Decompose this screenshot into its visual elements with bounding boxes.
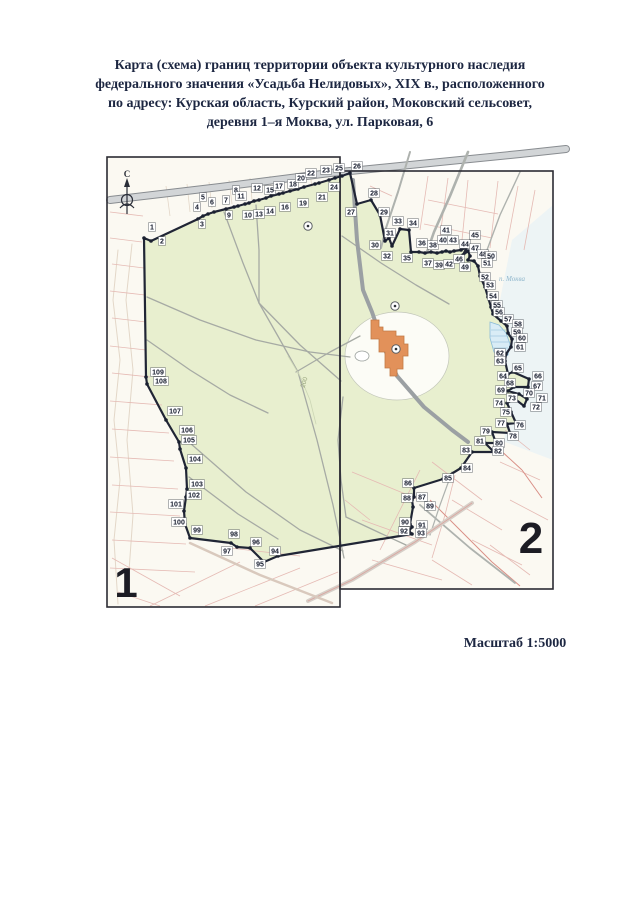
boundary-point-number: 53 [486, 283, 494, 290]
boundary-point-number: 16 [281, 205, 289, 212]
boundary-point-14: 14 [265, 207, 276, 216]
boundary-point-number: 7 [224, 198, 228, 205]
boundary-point-85: 85 [443, 474, 454, 483]
boundary-vertex-dot [257, 198, 261, 202]
boundary-point-number: 86 [404, 481, 412, 488]
boundary-point-number: 38 [429, 243, 437, 250]
boundary-point-number: 24 [330, 185, 338, 192]
boundary-point-77: 77 [496, 419, 507, 428]
boundary-vertex-dot [269, 194, 273, 198]
boundary-point-101: 101 [169, 500, 184, 509]
boundary-map: 1234567891011121314151617181920212223242… [0, 0, 640, 904]
boundary-point-number: 68 [506, 381, 514, 388]
boundary-point-number: 101 [170, 502, 182, 509]
boundary-vertex-dot [177, 440, 181, 444]
boundary-vertex-dot [212, 210, 216, 214]
boundary-point-29: 29 [379, 208, 390, 217]
boundary-point-63: 63 [495, 357, 506, 366]
boundary-vertex-dot [142, 236, 146, 240]
boundary-point-number: 74 [495, 401, 503, 408]
boundary-point-number: 107 [169, 409, 181, 416]
boundary-point-66: 66 [533, 372, 544, 381]
boundary-point-number: 87 [418, 495, 426, 502]
boundary-point-43: 43 [448, 236, 459, 245]
boundary-vertex-dot [476, 264, 480, 268]
boundary-point-30: 30 [370, 241, 381, 250]
boundary-point-98: 98 [229, 530, 240, 539]
boundary-vertex-dot [410, 525, 414, 529]
boundary-vertex-dot [468, 254, 472, 258]
boundary-vertex-dot [178, 447, 182, 451]
boundary-vertex-dot [383, 239, 387, 243]
boundary-point-number: 4 [195, 205, 199, 212]
boundary-point-51: 51 [482, 259, 493, 268]
boundary-point-13: 13 [254, 210, 265, 219]
boundary-vertex-dot [164, 418, 168, 422]
boundary-point-97: 97 [222, 547, 233, 556]
boundary-point-46: 46 [454, 255, 465, 264]
boundary-point-number: 18 [289, 182, 297, 189]
scale-caption: Масштаб 1:5000 [365, 636, 640, 652]
boundary-point-33: 33 [393, 217, 404, 226]
boundary-point-49: 49 [460, 263, 471, 272]
boundary-point-57: 57 [503, 315, 514, 324]
boundary-point-108: 108 [154, 377, 169, 386]
boundary-point-100: 100 [172, 518, 187, 527]
boundary-point-number: 98 [230, 532, 238, 539]
boundary-point-83: 83 [461, 446, 472, 455]
boundary-vertex-dot [526, 385, 530, 389]
boundary-point-number: 1 [150, 225, 154, 232]
boundary-vertex-dot [333, 176, 337, 180]
boundary-point-79: 79 [481, 427, 492, 436]
boundary-point-number: 39 [435, 263, 443, 270]
boundary-point-number: 6 [210, 200, 214, 207]
boundary-point-84: 84 [462, 464, 473, 473]
boundary-point-106: 106 [180, 426, 195, 435]
boundary-point-86: 86 [403, 479, 414, 488]
boundary-point-number: 27 [347, 210, 355, 217]
boundary-point-number: 65 [514, 366, 522, 373]
boundary-vertex-dot [440, 250, 444, 254]
boundary-vertex-dot [506, 389, 510, 393]
boundary-vertex-dot [517, 392, 521, 396]
boundary-point-number: 10 [244, 213, 252, 220]
boundary-point-81: 81 [475, 437, 486, 446]
boundary-vertex-dot [302, 185, 306, 189]
boundary-vertex-dot [398, 227, 402, 231]
boundary-point-number: 71 [538, 396, 546, 403]
boundary-point-27: 27 [346, 208, 357, 217]
boundary-point-70: 70 [524, 389, 535, 398]
boundary-point-number: 78 [509, 434, 517, 441]
boundary-point-number: 34 [409, 221, 417, 228]
boundary-point-number: 93 [417, 531, 425, 538]
boundary-point-54: 54 [488, 292, 499, 301]
boundary-vertex-dot [288, 189, 292, 193]
boundary-point-number: 45 [471, 233, 479, 240]
boundary-point-71: 71 [537, 394, 548, 403]
boundary-vertex-dot [313, 182, 317, 186]
boundary-point-41: 41 [441, 226, 452, 235]
boundary-point-number: 54 [489, 294, 497, 301]
boundary-point-number: 12 [253, 186, 261, 193]
boundary-point-number: 97 [223, 549, 231, 556]
document-page: Карта (схема) границ территории объекта … [0, 0, 640, 904]
boundary-point-105: 105 [182, 436, 197, 445]
boundary-vertex-dot [236, 204, 240, 208]
boundary-point-58: 58 [513, 320, 524, 329]
boundary-point-89: 89 [425, 502, 436, 511]
boundary-point-number: 49 [461, 265, 469, 272]
boundary-vertex-dot [229, 541, 233, 545]
boundary-vertex-dot [435, 251, 439, 255]
boundary-vertex-dot [510, 337, 514, 341]
boundary-point-65: 65 [513, 364, 524, 373]
boundary-point-104: 104 [188, 455, 203, 464]
boundary-point-96: 96 [251, 538, 262, 547]
boundary-vertex-dot [243, 202, 247, 206]
boundary-point-number: 22 [307, 171, 315, 178]
boundary-point-95: 95 [255, 560, 266, 569]
boundary-point-103: 103 [190, 480, 205, 489]
boundary-point-109: 109 [151, 368, 166, 377]
boundary-point-87: 87 [417, 493, 428, 502]
boundary-point-16: 16 [280, 203, 291, 212]
boundary-point-number: 109 [152, 370, 164, 377]
boundary-point-number: 2 [160, 239, 164, 246]
boundary-point-number: 3 [200, 222, 204, 229]
boundary-vertex-dot [224, 207, 228, 211]
boundary-point-number: 79 [482, 429, 490, 436]
boundary-point-number: 9 [227, 213, 231, 220]
boundary-point-number: 31 [386, 231, 394, 238]
boundary-vertex-dot [499, 319, 503, 323]
boundary-point-number: 57 [504, 317, 512, 324]
boundary-point-number: 106 [181, 428, 193, 435]
boundary-point-number: 108 [155, 379, 167, 386]
boundary-point-24: 24 [329, 183, 340, 192]
boundary-point-22: 22 [306, 169, 317, 178]
small-pond [355, 351, 369, 361]
boundary-point-number: 30 [371, 243, 379, 250]
monument-symbol-dot [307, 225, 310, 228]
boundary-point-76: 76 [515, 421, 526, 430]
boundary-vertex-dot [144, 375, 148, 379]
boundary-vertex-dot [185, 487, 189, 491]
boundary-point-number: 44 [461, 242, 469, 249]
boundary-vertex-dot [466, 249, 470, 253]
boundary-point-19: 19 [298, 199, 309, 208]
boundary-vertex-dot [340, 174, 344, 178]
boundary-point-number: 99 [193, 528, 201, 535]
boundary-vertex-dot [472, 259, 476, 263]
boundary-point-74: 74 [494, 399, 505, 408]
boundary-point-82: 82 [493, 447, 504, 456]
boundary-point-61: 61 [515, 343, 526, 352]
boundary-point-38: 38 [428, 241, 439, 250]
boundary-point-99: 99 [192, 526, 203, 535]
boundary-point-number: 23 [322, 168, 330, 175]
boundary-vertex-dot [248, 546, 252, 550]
boundary-point-number: 75 [502, 410, 510, 417]
boundary-point-number: 11 [237, 194, 245, 201]
boundary-point-number: 94 [271, 549, 279, 556]
monument-symbol-dot [394, 305, 397, 308]
boundary-point-62: 62 [495, 349, 506, 358]
boundary-point-number: 19 [299, 201, 307, 208]
boundary-point-88: 88 [402, 494, 413, 503]
boundary-point-80: 80 [494, 439, 505, 448]
boundary-point-number: 81 [476, 439, 484, 446]
boundary-point-26: 26 [352, 162, 363, 171]
boundary-point-number: 100 [173, 520, 185, 527]
boundary-vertex-dot [182, 509, 186, 513]
boundary-vertex-dot [264, 196, 268, 200]
boundary-point-73: 73 [507, 394, 518, 403]
boundary-point-78: 78 [508, 432, 519, 441]
boundary-point-37: 37 [423, 259, 434, 268]
boundary-vertex-dot [423, 251, 427, 255]
boundary-point-93: 93 [416, 529, 427, 538]
boundary-point-number: 72 [532, 405, 540, 412]
boundary-vertex-dot [247, 201, 251, 205]
boundary-point-number: 42 [445, 262, 453, 269]
boundary-point-45: 45 [470, 231, 481, 240]
boundary-vertex-dot [184, 466, 188, 470]
boundary-point-number: 66 [534, 374, 542, 381]
boundary-point-69: 69 [496, 386, 507, 395]
boundary-vertex-dot [527, 377, 531, 381]
boundary-vertex-dot [407, 228, 411, 232]
compass-north-letter: С [124, 169, 131, 179]
boundary-point-number: 105 [183, 438, 195, 445]
boundary-point-25: 25 [334, 164, 345, 173]
boundary-point-number: 69 [497, 388, 505, 395]
boundary-point-90: 90 [400, 518, 411, 527]
boundary-point-number: 36 [418, 241, 426, 248]
boundary-point-number: 61 [516, 345, 524, 352]
boundary-point-number: 102 [188, 493, 200, 500]
boundary-point-number: 41 [442, 228, 450, 235]
boundary-point-52: 52 [480, 273, 491, 282]
boundary-point-number: 32 [383, 254, 391, 261]
boundary-point-number: 51 [483, 261, 491, 268]
boundary-vertex-dot [509, 345, 513, 349]
boundary-vertex-dot [206, 212, 210, 216]
boundary-point-107: 107 [168, 407, 183, 416]
boundary-point-number: 28 [370, 191, 378, 198]
boundary-vertex-dot [348, 171, 352, 175]
boundary-vertex-dot [448, 250, 452, 254]
boundary-vertex-dot [355, 202, 359, 206]
boundary-point-number: 40 [439, 238, 447, 245]
boundary-vertex-dot [411, 505, 415, 509]
boundary-point-40: 40 [438, 236, 449, 245]
boundary-point-72: 72 [531, 403, 542, 412]
boundary-point-5: 5 [200, 193, 207, 202]
boundary-vertex-dot [327, 178, 331, 182]
boundary-vertex-dot [201, 214, 205, 218]
boundary-point-number: 33 [394, 219, 402, 226]
boundary-point-34: 34 [408, 219, 419, 228]
boundary-point-number: 95 [256, 562, 264, 569]
boundary-point-53: 53 [485, 281, 496, 290]
boundary-point-number: 103 [191, 482, 203, 489]
boundary-point-number: 35 [403, 256, 411, 263]
boundary-vertex-dot [444, 249, 448, 253]
boundary-point-number: 83 [462, 448, 470, 455]
boundary-point-number: 43 [449, 238, 457, 245]
boundary-vertex-dot [466, 258, 470, 262]
boundary-vertex-dot [412, 495, 416, 499]
boundary-point-number: 21 [318, 195, 326, 202]
boundary-vertex-dot [522, 404, 526, 408]
boundary-point-number: 20 [297, 176, 305, 183]
boundary-point-number: 60 [518, 336, 526, 343]
boundary-vertex-dot [410, 532, 414, 536]
boundary-point-number: 89 [426, 504, 434, 511]
boundary-point-12: 12 [252, 184, 263, 193]
boundary-vertex-dot [317, 181, 321, 185]
boundary-point-number: 104 [189, 457, 201, 464]
boundary-point-number: 88 [403, 496, 411, 503]
boundary-point-number: 17 [275, 184, 283, 191]
boundary-point-number: 29 [380, 210, 388, 217]
boundary-point-number: 76 [516, 423, 524, 430]
boundary-point-11: 11 [236, 192, 247, 201]
boundary-point-39: 39 [434, 261, 445, 270]
settlement-label: п. Моква [499, 275, 525, 283]
boundary-vertex-dot [525, 397, 529, 401]
sheet-1-number: 1 [114, 559, 137, 606]
boundary-point-number: 90 [401, 520, 409, 527]
boundary-vertex-dot [369, 198, 373, 202]
monument-symbol-dot [395, 348, 398, 351]
boundary-point-44: 44 [460, 240, 471, 249]
boundary-point-35: 35 [402, 254, 413, 263]
boundary-vertex-dot [417, 250, 421, 254]
boundary-point-7: 7 [223, 196, 230, 205]
boundary-point-21: 21 [317, 193, 328, 202]
boundary-point-number: 15 [266, 188, 274, 195]
boundary-vertex-dot [459, 248, 463, 252]
boundary-point-number: 37 [424, 261, 432, 268]
boundary-point-75: 75 [501, 408, 512, 417]
boundary-point-number: 56 [495, 310, 503, 317]
boundary-vertex-dot [429, 250, 433, 254]
boundary-point-number: 84 [463, 466, 471, 473]
boundary-point-92: 92 [399, 527, 410, 536]
boundary-point-91: 91 [417, 521, 428, 530]
boundary-vertex-dot [149, 239, 153, 243]
boundary-vertex-dot [409, 250, 413, 254]
sheet-2-number: 2 [519, 514, 543, 563]
boundary-vertex-dot [235, 545, 239, 549]
boundary-point-2: 2 [159, 237, 166, 246]
boundary-point-number: 63 [496, 359, 504, 366]
boundary-point-36: 36 [417, 239, 428, 248]
boundary-point-number: 92 [400, 529, 408, 536]
boundary-point-32: 32 [382, 252, 393, 261]
boundary-vertex-dot [145, 382, 149, 386]
boundary-point-17: 17 [274, 182, 285, 191]
boundary-point-31: 31 [385, 229, 396, 238]
boundary-point-10: 10 [243, 211, 254, 220]
boundary-point-60: 60 [517, 334, 528, 343]
boundary-vertex-dot [232, 205, 236, 209]
boundary-point-42: 42 [444, 260, 455, 269]
boundary-point-number: 26 [353, 164, 361, 171]
boundary-point-9: 9 [226, 211, 233, 220]
boundary-vertex-dot [452, 249, 456, 253]
boundary-point-23: 23 [321, 166, 332, 175]
boundary-point-number: 5 [201, 195, 205, 202]
boundary-point-number: 77 [497, 421, 505, 428]
boundary-point-number: 70 [525, 391, 533, 398]
boundary-point-number: 13 [255, 212, 263, 219]
boundary-vertex-dot [252, 199, 256, 203]
boundary-vertex-dot [506, 331, 510, 335]
boundary-point-6: 6 [209, 198, 216, 207]
boundary-point-number: 25 [335, 166, 343, 173]
boundary-point-number: 85 [444, 476, 452, 483]
boundary-point-94: 94 [270, 547, 281, 556]
boundary-point-4: 4 [194, 203, 201, 212]
boundary-point-102: 102 [187, 491, 202, 500]
boundary-point-20: 20 [296, 174, 307, 183]
boundary-point-number: 14 [266, 209, 274, 216]
boundary-point-28: 28 [369, 189, 380, 198]
boundary-vertex-dot [277, 192, 281, 196]
boundary-vertex-dot [505, 324, 509, 328]
boundary-point-1: 1 [149, 223, 156, 232]
boundary-point-number: 96 [252, 540, 260, 547]
boundary-point-3: 3 [199, 220, 206, 229]
boundary-point-number: 82 [494, 449, 502, 456]
boundary-vertex-dot [188, 536, 192, 540]
boundary-vertex-dot [390, 244, 394, 248]
boundary-point-number: 73 [508, 396, 516, 403]
boundary-vertex-dot [281, 191, 285, 195]
